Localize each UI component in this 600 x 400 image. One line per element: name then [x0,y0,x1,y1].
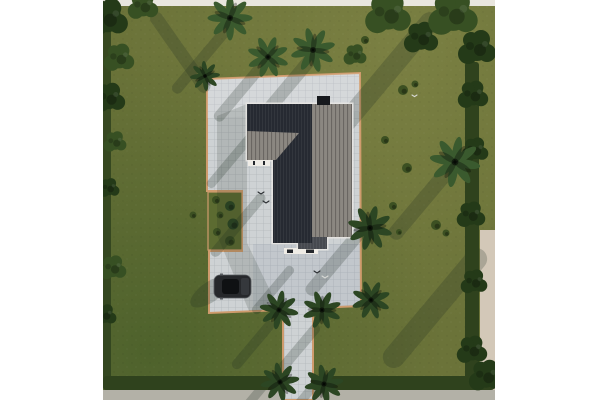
roof-east-ribs [312,104,352,237]
porch-column [263,161,265,165]
shrub [389,202,397,210]
shrub [361,36,369,44]
shrub [398,85,408,95]
car-hood [241,278,249,295]
shrub [381,136,389,144]
shrub [412,81,419,88]
car-mirror [220,274,223,276]
car-roof-glass [222,279,239,294]
page-background [0,0,600,400]
hedge-bottom-left [103,376,277,390]
entry-window [287,250,293,254]
entry-window [306,250,314,254]
chimney [317,96,330,105]
shrub [431,220,441,230]
porch-column [253,161,255,165]
shrub [402,163,412,173]
site-render [103,0,495,400]
site-plan-svg [103,0,495,400]
shrub [396,229,402,235]
shrub [190,212,197,219]
shrub [443,230,450,237]
porch-ledge [248,160,270,166]
car-mirror [220,298,223,300]
